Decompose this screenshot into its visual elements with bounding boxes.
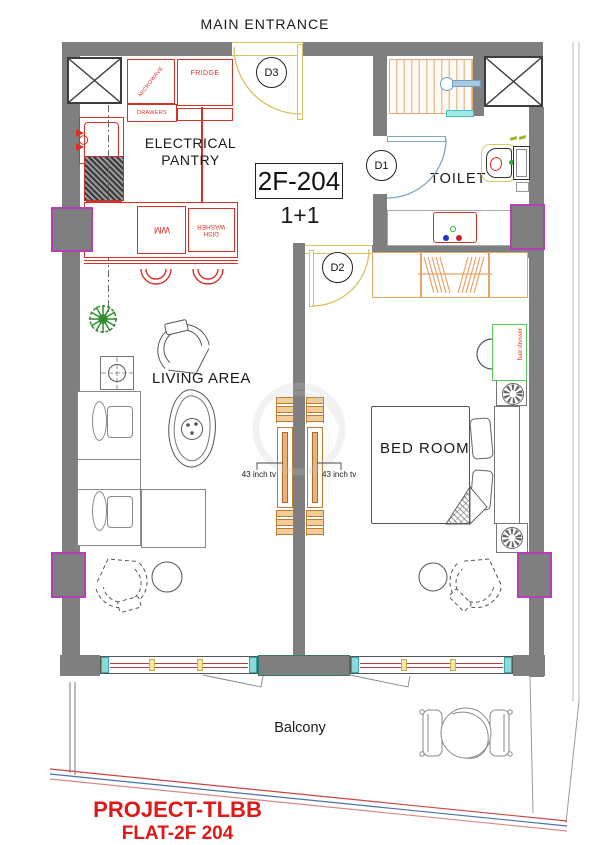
tv-left-screen [282, 432, 288, 503]
door-tag-d3: D3 [256, 57, 287, 88]
column-left-mid [51, 207, 93, 252]
nightstand-bottom [496, 523, 528, 553]
pantry-label-line1: ELECTRICAL [138, 135, 243, 152]
pantry-room-label: ELECTRICAL PANTRY [138, 135, 243, 169]
footer-line2: FLAT-2F 204 [80, 823, 275, 845]
door-tag-d1: D1 [366, 150, 397, 181]
pantry-label-line2: PANTRY [138, 152, 243, 169]
living-sliding-window [100, 656, 258, 674]
door-tag-d2-label: D2 [330, 262, 344, 274]
tv-right-screen [312, 432, 318, 503]
window-cap [249, 657, 257, 673]
tv-unit-left-slats-top [276, 397, 294, 423]
washing-machine-label: WM [154, 225, 170, 235]
wardrobe-divider-2 [488, 252, 490, 298]
bedroom-lounge-chair [437, 546, 511, 622]
window-divider [149, 659, 155, 671]
tap-hot-dot [456, 235, 462, 241]
fridge-label: FRIDGE [191, 70, 220, 77]
window-glass-line [110, 667, 248, 668]
window-cap [351, 657, 359, 673]
column-toilet [510, 204, 545, 250]
top-wall-left [62, 42, 232, 56]
window-flap-lines [203, 675, 410, 687]
window-glass-line [110, 663, 248, 664]
desk-divider-2 [77, 489, 141, 490]
tv-unit-left-slats-bottom [276, 510, 294, 536]
window-cap [504, 657, 512, 673]
counter-stools [141, 269, 223, 284]
window-divider [401, 659, 407, 671]
microwave-label: MICROWAVE [137, 65, 164, 98]
kitchen-sink-basin [84, 122, 119, 159]
living-side-table [152, 562, 182, 592]
nightstand-top [496, 380, 527, 406]
column-cross-icon [69, 59, 120, 102]
hair-dresser-label: hair dresser [516, 328, 524, 360]
drawers-box: DRAWERS [127, 104, 177, 122]
living-room-label: LIVING AREA [152, 370, 251, 387]
tv-left-label: 43 inch tv [234, 470, 276, 479]
toilet-left-wall-bottom [373, 194, 387, 246]
fridge-shelf [177, 108, 233, 121]
wc-vent-dash-1 [510, 136, 518, 141]
door-tag-d1-label: D1 [374, 160, 388, 172]
d2-door-leaf [309, 250, 314, 307]
coffee-table [169, 390, 216, 467]
bed-mattress [371, 406, 470, 524]
drawers-label: DRAWERS [137, 110, 167, 116]
bed-pillow-1 [469, 417, 493, 460]
pantry-counter-front [84, 260, 238, 264]
tap-cold-dot [443, 235, 449, 241]
washing-machine-box: WM [137, 206, 186, 254]
bottom-wall-left [60, 655, 100, 676]
desk-chair-2-seat [107, 496, 133, 528]
dishwasher-label: DISH WASHER [197, 223, 225, 237]
side-table-square [100, 356, 134, 390]
footer-project-title: PROJECT-TLBB FLAT-2F 204 [80, 797, 275, 845]
hair-dresser: hair dresser [492, 324, 527, 381]
main-entrance-label: MAIN ENTRANCE [195, 16, 335, 32]
bedroom-sliding-window [350, 656, 513, 674]
shower-glass-door [446, 110, 474, 117]
desk-chair-2-back [92, 491, 107, 531]
dishwasher-label-line1: DISH [197, 230, 225, 237]
desk-divider-1 [77, 459, 141, 460]
unit-number: 2F-204 [258, 166, 340, 197]
bottom-wall-pier [258, 655, 350, 676]
unit-type: 1+1 [276, 202, 324, 229]
toilet-room-label: TOILET [430, 171, 487, 187]
wardrobe [372, 252, 528, 298]
tv-unit-right-slats-top [306, 397, 324, 423]
bed-pillow-2 [469, 469, 493, 511]
window-cap [101, 657, 109, 673]
footer-line1: PROJECT-TLBB [80, 797, 275, 823]
entrance-door-opening [232, 42, 303, 56]
top-wall-right [303, 42, 543, 56]
balcony-table-set [420, 708, 512, 758]
bed-headboard [494, 406, 520, 524]
window-glass-line [360, 667, 503, 668]
fridge-box: FRIDGE [177, 59, 233, 106]
tv-right-label: 43 inch tv [322, 470, 367, 479]
dishwasher-label-line2: WASHER [197, 223, 225, 230]
wardrobe-divider-1 [420, 252, 422, 298]
plant-icon [89, 305, 117, 333]
floor-plan: MAIN ENTRANCE D3 D1 D2 MICROWAVE FRIDGE … [0, 0, 600, 845]
stove-hob [84, 156, 124, 201]
desk-chair-1-seat [107, 406, 133, 438]
column-left-low [51, 552, 86, 598]
balcony-room-label: Balcony [265, 720, 335, 736]
microwave-box: MICROWAVE [127, 59, 175, 104]
d1-door-leaf [387, 136, 446, 142]
dresser-mirror-icon [477, 339, 492, 369]
column-right-low [517, 552, 552, 598]
wc-vent-dash-2 [519, 135, 527, 140]
window-divider [450, 659, 456, 671]
wc-cistern-inner [516, 149, 527, 177]
tv-unit-right-slats-bottom [306, 510, 324, 536]
column-top-right [484, 56, 543, 107]
desk-chair-1-back [92, 401, 107, 441]
bedroom-room-label: BED ROOM [380, 440, 470, 457]
entrance-door-leaf [297, 44, 303, 120]
dishwasher-box: DISH WASHER [188, 208, 235, 252]
wc-small-box [516, 182, 529, 192]
unit-number-box: 2F-204 [255, 163, 343, 199]
column-top-left [67, 57, 122, 104]
bedroom-side-table [419, 563, 447, 591]
center-dividing-wall [293, 243, 305, 656]
door-tag-d2: D2 [322, 252, 353, 283]
column-cross-icon [486, 58, 541, 105]
window-divider [197, 659, 203, 671]
desk-return [141, 489, 206, 548]
drain-ring [450, 226, 456, 232]
door-tag-d3-label: D3 [264, 67, 278, 79]
bottom-wall-right [513, 655, 545, 676]
shower-arm-icon [452, 80, 481, 87]
toilet-left-wall-top [373, 56, 387, 136]
window-glass-line [360, 663, 503, 664]
living-lounge-chair-2 [85, 546, 159, 622]
